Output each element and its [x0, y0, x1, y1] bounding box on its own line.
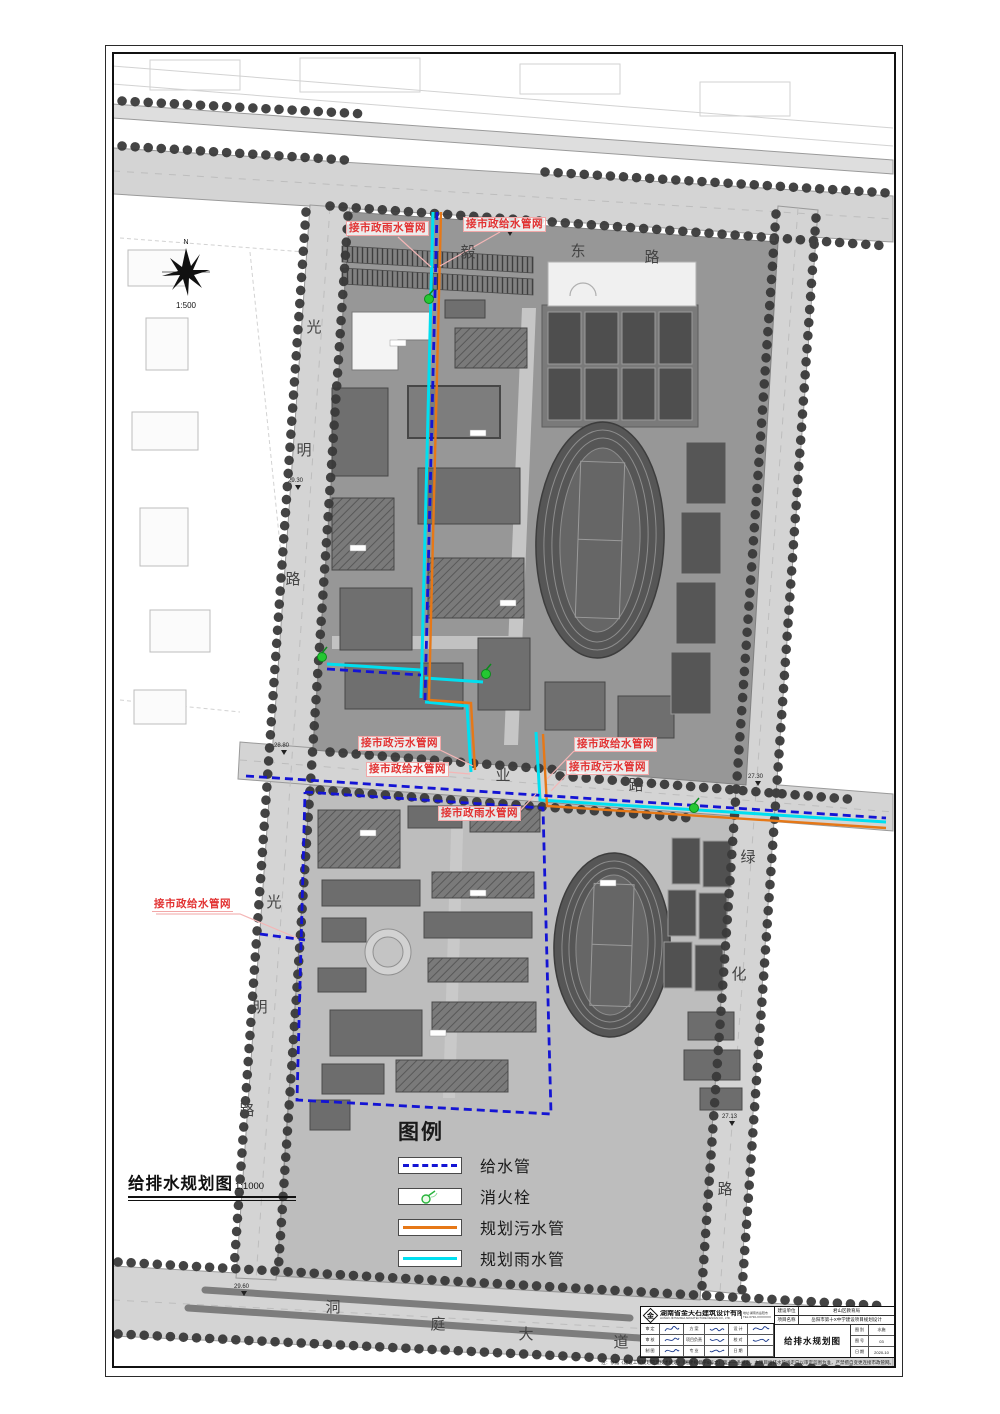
legend-row-rain: 规划雨水管 — [398, 1249, 565, 1267]
legend-row-hydrant: 消火栓 — [398, 1187, 565, 1205]
signature-scribble — [705, 1335, 729, 1346]
legend-row-water: 给水管 — [398, 1156, 565, 1174]
signature-scribble — [705, 1346, 729, 1357]
signature-scribble — [748, 1335, 774, 1346]
owner-row: 建设单位 君山区教育局 — [775, 1307, 894, 1316]
annotation-water-left: 接市政给水管网 — [152, 898, 233, 912]
annotation-rain-lower: 接市政雨水管网 — [438, 806, 521, 821]
plan-scale: 1:1000 — [235, 1181, 264, 1192]
plan-title: 给排水规划图1:1000 — [128, 1170, 296, 1201]
rain-pipe-swatch — [398, 1250, 462, 1267]
signature-scribble — [660, 1346, 684, 1357]
legend-title: 图例 — [398, 1116, 565, 1146]
annotation-sewage-mid-left: 接市政污水管网 — [358, 736, 441, 751]
title-block-note: 注：依据《建设工程规划管理技术规定》（湘建规督字9号文）第十一条规定，本项目给排… — [540, 1360, 894, 1366]
annotation-rain-top: 接市政雨水管网 — [346, 221, 429, 236]
annotation-water-top: 接市政给水管网 — [463, 217, 546, 232]
title-block: 金 湖南省金天石建筑设计有限公司 HUNAN JINTIANSHI ARCHIT… — [640, 1306, 895, 1358]
annotation-water-mid-right: 接市政给水管网 — [574, 737, 657, 752]
signature-scribble — [660, 1335, 684, 1346]
signature-scribble — [748, 1324, 774, 1335]
annotation-sewage-mid-right: 接市政污水管网 — [566, 760, 649, 775]
company-logo: 金 — [643, 1308, 658, 1323]
underline — [128, 1196, 296, 1198]
signature-scribble — [705, 1324, 729, 1335]
legend: 图例 给水管 消火栓 规划污水管 规划雨水管 — [398, 1116, 565, 1280]
legend-row-sewage: 规划污水管 — [398, 1218, 565, 1236]
drawing-sheet: 29.85 29.30 28.80 27.30 29.60 27.13 毅 东 … — [0, 0, 1000, 1414]
project-row: 项目名称 岳阳市第十X中学建设项目规划设计 — [775, 1316, 894, 1325]
company-contact: 地址:湖南省岳阳市 TEL:0730-XXXXXXX — [741, 1311, 774, 1319]
annotation-water-mid-left: 接市政给水管网 — [366, 762, 449, 777]
company-name-en: HUNAN JINTIANSHI ARCHITECTURE DESIGN CO.… — [660, 1317, 733, 1320]
signature-grid: 审 定 方 案 设 计 审 核 项目负责 校 对 制 图 专 业 日 期 — [641, 1324, 774, 1357]
drawing-title: 给排水规划图 — [775, 1325, 850, 1357]
underline — [128, 1200, 296, 1201]
plan-title-text: 给排水规划图 — [128, 1175, 233, 1193]
sewage-pipe-swatch — [398, 1219, 462, 1236]
water-pipe-swatch — [398, 1157, 462, 1174]
fire-hydrant-icon — [398, 1188, 462, 1205]
signature-scribble — [660, 1324, 684, 1335]
drawing-meta: 图 别水施 图 号03 日 期2020-10 — [850, 1325, 894, 1357]
